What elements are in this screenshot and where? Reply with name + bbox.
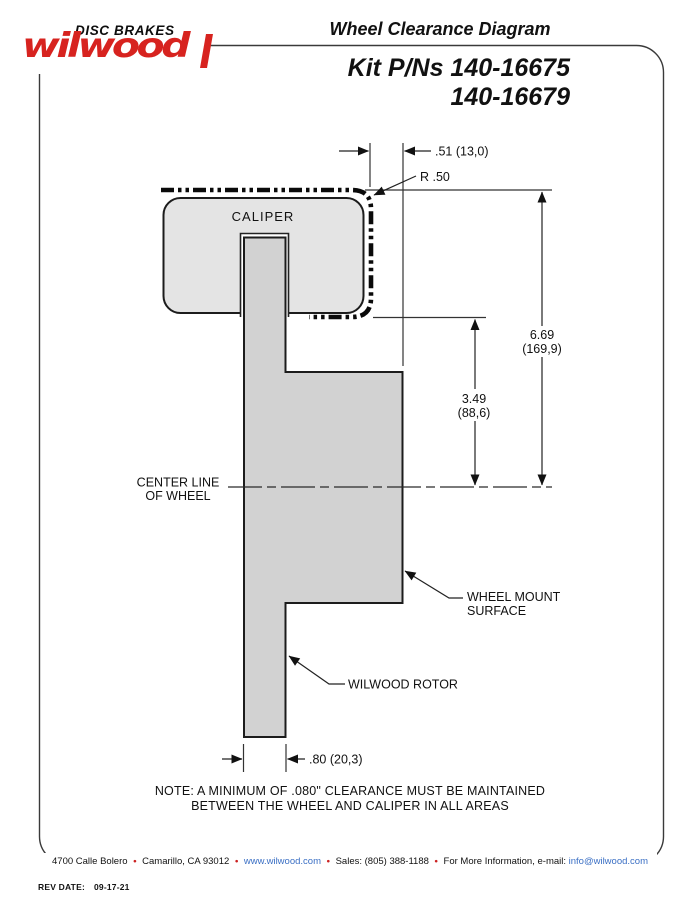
footer-contact-strip: 4700 Calle Bolero • Camarillo, CA 93012 … — [43, 853, 657, 870]
caliper-label: CALIPER — [232, 209, 295, 224]
footer-city: Camarillo, CA 93012 — [142, 856, 229, 867]
center-line-label-2: OF WHEEL — [145, 489, 210, 503]
footer: 4700 Calle Bolero • Camarillo, CA 93012 … — [0, 851, 700, 870]
clearance-note: NOTE: A MINIMUM OF .080" CLEARANCE MUST … — [0, 784, 700, 814]
wheel-mount-label-2: SURFACE — [467, 604, 526, 618]
dim-inner-radius-mm: (88,6) — [458, 406, 491, 420]
dim-outer-radius-mm: (169,9) — [522, 342, 562, 356]
bullet-separator-icon: • — [435, 856, 438, 867]
website-link[interactable]: www.wilwood.com — [244, 856, 321, 867]
dim-corner-radius: R .50 — [420, 170, 450, 184]
logo-brand-wordmark: wilwood — [22, 26, 187, 65]
note-line-1: NOTE: A MINIMUM OF .080" CLEARANCE MUST … — [0, 784, 700, 799]
radius-leader — [374, 176, 416, 195]
wheel-clearance-diagram-page: CALIPER .51 (13,0) R .50 6.69 (169,9) 3.… — [0, 0, 700, 906]
center-line-label-1: CENTER LINE — [137, 476, 220, 490]
note-line-2: BETWEEN THE WHEEL AND CALIPER IN ALL ARE… — [0, 799, 700, 814]
wheel-mount-label-1: WHEEL MOUNT — [467, 590, 561, 604]
revision-date: REV DATE:09-17-21 — [38, 882, 130, 892]
wilwood-logo: DISC BRAKES wilwood — [22, 15, 210, 74]
footer-sales-phone: Sales: (805) 388-1188 — [336, 856, 429, 867]
footer-address: 4700 Calle Bolero — [52, 856, 128, 867]
rotor-leader — [289, 656, 345, 684]
rotor-label: WILWOOD ROTOR — [348, 678, 458, 692]
rev-date-label: REV DATE: — [38, 882, 85, 892]
bullet-separator-icon: • — [133, 856, 136, 867]
wheel-mount-leader — [405, 571, 463, 598]
drawing-canvas: CALIPER .51 (13,0) R .50 6.69 (169,9) 3.… — [0, 0, 700, 906]
email-link[interactable]: info@wilwood.com — [569, 856, 648, 867]
bullet-separator-icon: • — [327, 856, 330, 867]
dim-inner-radius-in: 3.49 — [462, 392, 486, 406]
footer-info-label: For More Information, e-mail: — [444, 856, 566, 867]
dim-outer-radius-in: 6.69 — [530, 328, 554, 342]
rev-date-value: 09-17-21 — [94, 882, 130, 892]
dim-caliper-offset: .51 (13,0) — [435, 145, 489, 159]
bullet-separator-icon: • — [235, 856, 238, 867]
dim-rotor-width: .80 (20,3) — [309, 753, 363, 767]
